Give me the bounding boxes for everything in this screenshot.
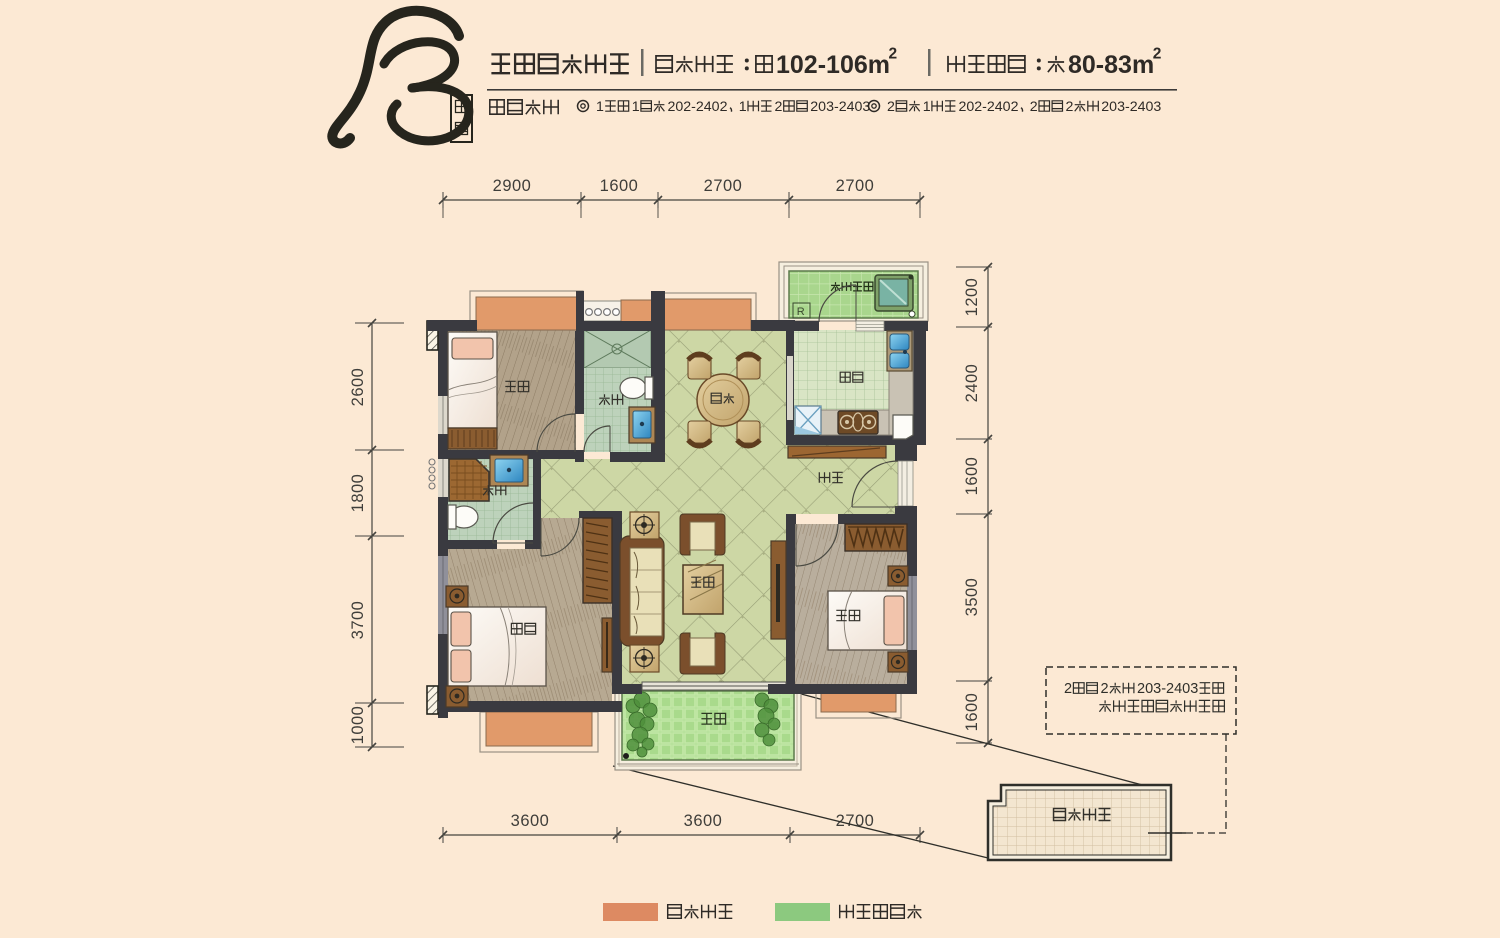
svg-text:2700: 2700 (704, 177, 743, 195)
svg-text:2400: 2400 (963, 364, 981, 403)
svg-text:3700: 3700 (349, 601, 367, 640)
svg-text:80-83m: 80-83m (1068, 51, 1154, 79)
svg-text:203-2403: 203-2403 (810, 99, 870, 115)
svg-text:2: 2 (1064, 681, 1072, 697)
svg-text:1600: 1600 (963, 457, 981, 496)
svg-text:1: 1 (632, 99, 640, 115)
svg-text:2: 2 (1030, 99, 1038, 115)
svg-text:3500: 3500 (963, 578, 981, 617)
svg-text:2: 2 (1101, 681, 1109, 697)
svg-text:2: 2 (775, 99, 783, 115)
svg-text:1600: 1600 (963, 693, 981, 732)
svg-text:2: 2 (1066, 99, 1074, 115)
svg-text:2600: 2600 (349, 368, 367, 407)
svg-text:2900: 2900 (493, 177, 532, 195)
svg-text:1800: 1800 (349, 474, 367, 513)
svg-text:1: 1 (923, 99, 931, 115)
svg-text:1000: 1000 (349, 706, 367, 745)
svg-text:102-106m: 102-106m (776, 51, 890, 79)
svg-text:202-2402: 202-2402 (668, 99, 728, 115)
svg-text:2700: 2700 (836, 812, 875, 830)
svg-text:2: 2 (887, 99, 895, 115)
svg-text:2: 2 (889, 46, 898, 63)
svg-text:1200: 1200 (963, 278, 981, 317)
svg-text:1600: 1600 (600, 177, 639, 195)
svg-text:R: R (797, 306, 805, 318)
svg-text:1: 1 (596, 99, 604, 115)
svg-text:1: 1 (739, 99, 747, 115)
svg-text:202-2402: 202-2402 (959, 99, 1019, 115)
svg-text:3600: 3600 (684, 812, 723, 830)
svg-text:2700: 2700 (836, 177, 875, 195)
svg-text:3600: 3600 (511, 812, 550, 830)
svg-text:2: 2 (1153, 46, 1162, 63)
svg-text:203-2403: 203-2403 (1101, 99, 1161, 115)
svg-text:203-2403: 203-2403 (1137, 681, 1198, 697)
